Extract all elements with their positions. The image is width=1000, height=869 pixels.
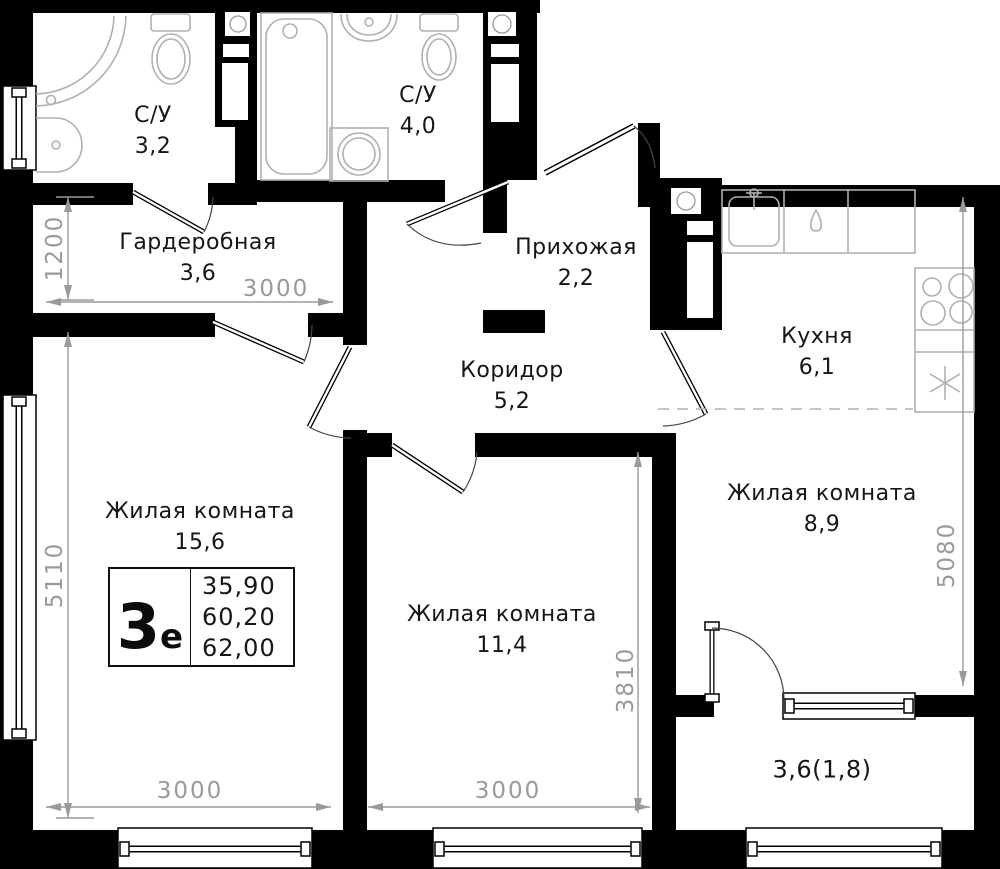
stove-icon — [921, 274, 973, 325]
room-area: 11,4 — [407, 630, 597, 661]
room-label-living-1: Жилая комната 15,6 — [105, 496, 295, 558]
room-name: Жилая комната — [727, 478, 917, 509]
dim-label-5110: 5110 — [42, 542, 68, 609]
room-name: С/У — [399, 80, 437, 111]
dim-label-3000-living1: 3000 — [157, 778, 224, 804]
unit-areas: 35,90 60,20 62,00 — [191, 569, 293, 665]
room-name: Коридор — [460, 355, 563, 386]
floor-plan: С/У 3,2 С/У 4,0 Гардеробная 3,6 Прихожая… — [0, 0, 1000, 869]
door-bathroom-1 — [133, 192, 213, 232]
room-name: Гардеробная — [119, 227, 276, 258]
unit-type-letter: е — [160, 624, 183, 651]
door-wardrobe — [213, 322, 312, 362]
kitchen-sink-icon — [729, 189, 779, 246]
room-label-bathroom-1: С/У 3,2 — [134, 100, 172, 162]
window-balcony — [746, 828, 942, 868]
room-area: 3,2 — [134, 131, 172, 162]
door-living-2 — [392, 445, 477, 492]
sink-icon — [36, 118, 82, 172]
room-name: Жилая комната — [407, 599, 597, 630]
window-living3-balcony — [783, 693, 915, 719]
window-bottom-left — [118, 828, 312, 868]
room-area: 2,2 — [515, 263, 637, 294]
room-label-kitchen: Кухня 6,1 — [781, 321, 853, 383]
room-area: 4,0 — [399, 111, 437, 142]
sink-icon-2 — [341, 14, 397, 41]
room-name: Кухня — [781, 321, 853, 352]
bathtub-icon — [261, 13, 332, 180]
room-label-living-3: Жилая комната 8,9 — [727, 478, 917, 540]
unit-type-badge: 3 е — [110, 569, 191, 665]
washing-machine-icon — [330, 128, 388, 181]
room-label-hallway: Прихожая 2,2 — [515, 232, 637, 294]
dim-line-3000-living2 — [368, 803, 650, 811]
unit-type-number: 3 — [117, 603, 160, 651]
window-left-top — [3, 86, 36, 170]
room-area: 8,9 — [727, 509, 917, 540]
dim-label-3000-living2: 3000 — [475, 778, 542, 804]
room-name: Прихожая — [515, 232, 637, 263]
dim-line-5080 — [959, 197, 967, 686]
room-label-living-2: Жилая комната 11,4 — [407, 599, 597, 661]
dim-label-1200: 1200 — [42, 215, 68, 282]
unit-stamp: 3 е 35,90 60,20 62,00 — [108, 567, 295, 667]
toilet-icon-2 — [420, 14, 458, 80]
room-label-bathroom-2: С/У 4,0 — [399, 80, 437, 142]
dim-label-3000-wardrobe: 3000 — [243, 276, 310, 302]
door-living-1 — [309, 347, 351, 438]
unit-area-main: 60,20 — [202, 603, 293, 631]
room-name: Жилая комната — [105, 496, 295, 527]
room-label-corridor: Коридор 5,2 — [460, 355, 563, 417]
room-area: 6,1 — [781, 352, 853, 383]
unit-area-total: 62,00 — [202, 634, 293, 662]
door-balcony — [705, 622, 784, 702]
room-label-balcony: 3,6(1,8) — [772, 755, 871, 786]
unit-area-living: 35,90 — [202, 572, 293, 600]
window-bottom-middle — [433, 828, 642, 868]
fridge-icon — [930, 366, 960, 400]
toilet-icon — [151, 14, 190, 84]
room-area: 3,6(1,8) — [772, 755, 871, 786]
dim-label-5080: 5080 — [934, 522, 960, 589]
dim-label-3810: 3810 — [613, 647, 639, 714]
water-drop-icon — [811, 210, 822, 231]
window-left-bottom — [3, 395, 36, 740]
room-area: 5,2 — [460, 386, 563, 417]
door-kitchen — [663, 332, 706, 426]
room-name: С/У — [134, 100, 172, 131]
dim-line-3810 — [634, 452, 642, 813]
room-area: 15,6 — [105, 527, 295, 558]
shower-icon — [36, 16, 126, 106]
dim-line-3000-living1 — [46, 803, 331, 811]
